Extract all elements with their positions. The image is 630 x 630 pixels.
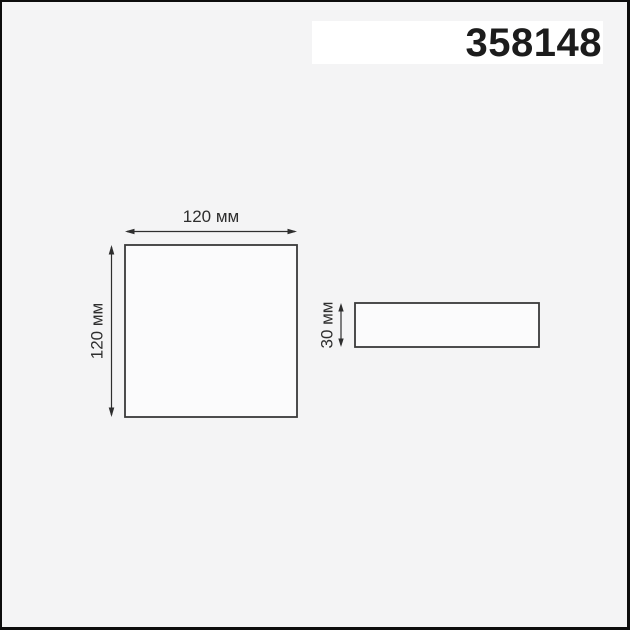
side-view-outline	[355, 303, 539, 347]
product-dimension-diagram: 358148 120 мм 120 мм 30 мм	[0, 0, 630, 630]
height-dimension-arrow	[109, 245, 115, 417]
front-height-label: 120 мм	[89, 303, 106, 359]
front-width-label: 120 мм	[125, 208, 297, 225]
front-view-outline	[125, 245, 297, 417]
width-dimension-arrow	[125, 229, 297, 235]
depth-dimension-arrow	[338, 303, 343, 347]
side-height-label: 30 мм	[319, 301, 336, 348]
